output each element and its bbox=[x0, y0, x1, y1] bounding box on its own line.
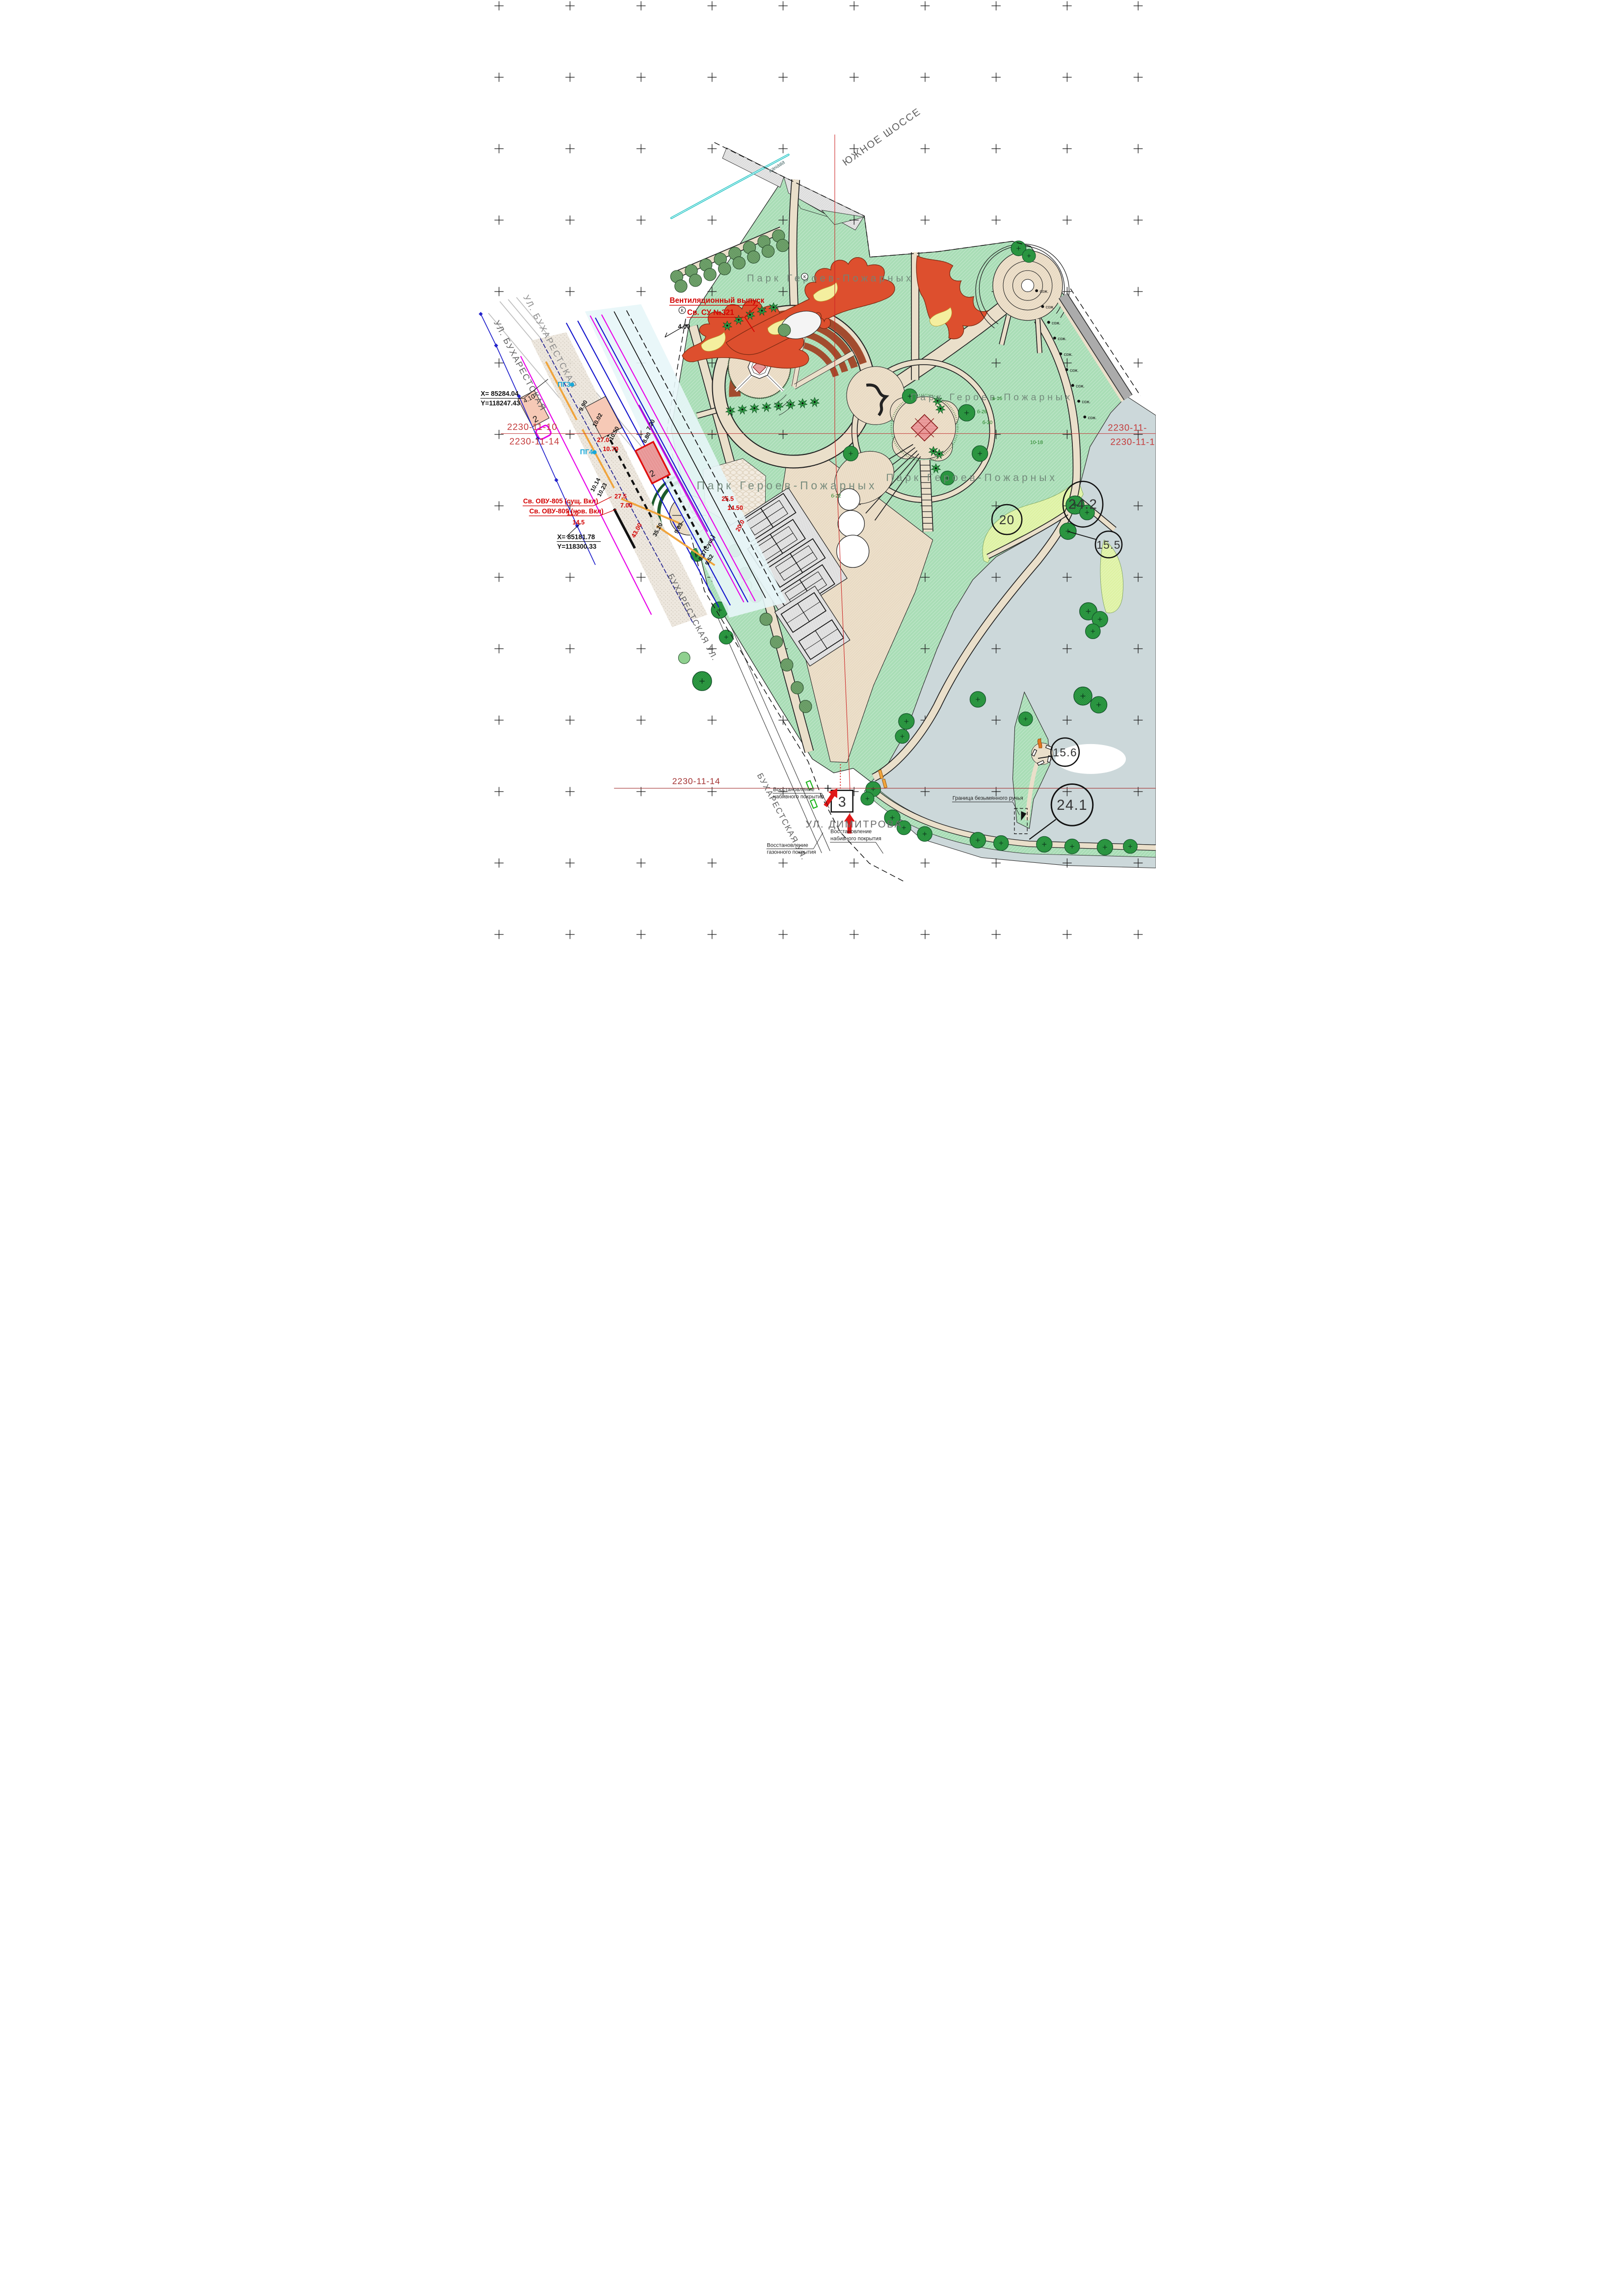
plant-tag: б-26 bbox=[977, 409, 987, 415]
tree-icon bbox=[778, 324, 790, 336]
tree-icon bbox=[770, 636, 782, 648]
svg-text:К: К bbox=[803, 274, 806, 279]
callout-15-6-label: 15.6 bbox=[1053, 746, 1077, 759]
point-label: сож. bbox=[1064, 352, 1072, 357]
point-label: сож. bbox=[1082, 400, 1091, 404]
vent-note-line1: Вентиляционный выпуск bbox=[669, 296, 764, 305]
tree-icon bbox=[917, 827, 932, 841]
dim: 27.5 bbox=[614, 493, 627, 500]
note-line: Восстановление bbox=[830, 828, 872, 834]
plant-tag: б-22 bbox=[831, 493, 841, 499]
dim: 25.5 bbox=[721, 495, 734, 502]
street-dimitrova: УЛ. ДИМИТРОВА bbox=[805, 819, 902, 830]
sheet-ref-upper-left-bottom: 2230-11-14 bbox=[509, 436, 559, 446]
point-label: сож. bbox=[1058, 336, 1066, 341]
tree-icon bbox=[895, 729, 909, 744]
hydrant-icon bbox=[592, 450, 596, 454]
tree-icon bbox=[674, 280, 687, 292]
tree-icon bbox=[692, 671, 712, 691]
tree-icon bbox=[1123, 839, 1137, 854]
note-line: газонного покрытия bbox=[767, 850, 816, 855]
point-label: сож. bbox=[1039, 289, 1048, 294]
dim: 11.0 bbox=[566, 510, 578, 517]
callout-20-label: 20 bbox=[999, 512, 1014, 527]
tree-icon bbox=[958, 404, 975, 421]
sheet-ref-lower: 2230-11-14 bbox=[672, 776, 720, 786]
coord2-x: X= 85181.78 bbox=[557, 533, 595, 540]
tree-icon bbox=[747, 251, 759, 263]
tree-icon bbox=[689, 274, 701, 286]
plant-tag: в-16 bbox=[992, 396, 1002, 401]
callout-15-5-label: 15.5 bbox=[1096, 538, 1121, 551]
callout-24-1-label: 24.1 bbox=[1057, 797, 1088, 813]
tree-icon bbox=[791, 682, 803, 694]
park-name-label-3: Парк Героев-Пожарных bbox=[910, 392, 1073, 403]
dim: 10.70 bbox=[603, 446, 618, 453]
callout-24-2-label: 24.2 bbox=[1068, 497, 1097, 512]
tree-icon bbox=[1090, 696, 1107, 713]
park-name-label-4: Парк Героев-Пожарных bbox=[746, 273, 913, 284]
tree-icon bbox=[1073, 687, 1092, 705]
tree-icon bbox=[1018, 712, 1033, 726]
point-label: сож. bbox=[1076, 383, 1085, 388]
point-label: сож. bbox=[1069, 368, 1078, 373]
plant-tag: б-30 bbox=[982, 420, 992, 426]
dim: 14.5 bbox=[572, 519, 585, 526]
vent-note-line2: Св. СУ №321 bbox=[687, 308, 734, 317]
note-line: Восстановление bbox=[773, 787, 814, 793]
cable-note-line2: Св. ОВУ-809 (нов. Вкл) bbox=[529, 507, 603, 515]
tree-icon bbox=[970, 692, 985, 707]
tree-icon bbox=[733, 257, 745, 269]
point-label: сож. bbox=[1045, 305, 1054, 310]
stairs-path bbox=[920, 460, 932, 532]
tree-icon bbox=[843, 446, 858, 461]
plant-tag: 10-18 bbox=[1030, 440, 1043, 446]
point-label: сож. bbox=[1088, 415, 1096, 420]
coord2-y: Y=118300.33 bbox=[557, 543, 597, 550]
tree-icon bbox=[760, 613, 772, 625]
note-line: Восстановление bbox=[767, 842, 808, 848]
dim: 14.50 bbox=[727, 505, 743, 511]
hydrant-pg3: ПГ3 bbox=[558, 381, 570, 389]
site-plan-drawing: сож. сож. сож. сож. сож. сож. сож. сож. … bbox=[469, 0, 1156, 971]
tree-icon bbox=[860, 792, 874, 805]
hydrant-pg4: ПГ4 bbox=[580, 449, 592, 456]
tree-icon bbox=[776, 239, 789, 251]
hydrant-icon bbox=[570, 382, 574, 386]
viewpoint-3-label: 3 bbox=[838, 794, 846, 810]
cable-note-line1: Св. ОВУ-805 (сущ. Вкл) bbox=[523, 498, 598, 505]
k-symbol: К bbox=[681, 308, 684, 313]
tree-icon bbox=[678, 652, 690, 664]
tree-icon bbox=[1085, 624, 1100, 639]
sheet-ref-upper-left-top: 2230-11-10 bbox=[507, 422, 557, 432]
drawing-sheet: сож. сож. сож. сож. сож. сож. сож. сож. … bbox=[469, 0, 1156, 971]
dim: 7.00 bbox=[620, 502, 632, 509]
dim: 27.0 bbox=[597, 436, 609, 443]
coord1-y: Y=118247.43 bbox=[480, 400, 520, 407]
tree-icon bbox=[1022, 249, 1035, 263]
note-line: набивного покрытия bbox=[773, 794, 824, 800]
note-line: Граница безымянного ручья bbox=[952, 796, 1023, 801]
tree-icon bbox=[1065, 839, 1079, 854]
tree-icon bbox=[799, 700, 811, 713]
tree-icon bbox=[1097, 839, 1113, 855]
tree-icon bbox=[970, 832, 985, 848]
park-name-label-2: Парк Героев-Пожарных bbox=[886, 472, 1057, 483]
k-symbol-2: К bbox=[801, 273, 808, 280]
tree-icon bbox=[718, 263, 730, 275]
tree-icon bbox=[972, 446, 987, 461]
sheet-ref-upper-right-top: 2230-11- bbox=[1108, 422, 1147, 432]
coord1-x: X= 85284.04 bbox=[480, 390, 519, 397]
note-line: набивного покрытия bbox=[830, 836, 881, 842]
tree-icon bbox=[898, 714, 914, 729]
tree-icon bbox=[1036, 836, 1052, 852]
tree-icon bbox=[703, 268, 716, 281]
sheet-ref-upper-right-bottom: 2230-11-1 bbox=[1110, 436, 1155, 447]
tree-icon bbox=[780, 659, 793, 671]
point-label: сож. bbox=[1052, 320, 1061, 325]
tree-icon bbox=[762, 245, 774, 257]
park-name-label-1: Парк Героев-Пожарных bbox=[696, 479, 877, 492]
tree-icon bbox=[993, 836, 1008, 851]
tree-icon bbox=[719, 630, 733, 644]
tree-icon bbox=[1060, 523, 1076, 539]
